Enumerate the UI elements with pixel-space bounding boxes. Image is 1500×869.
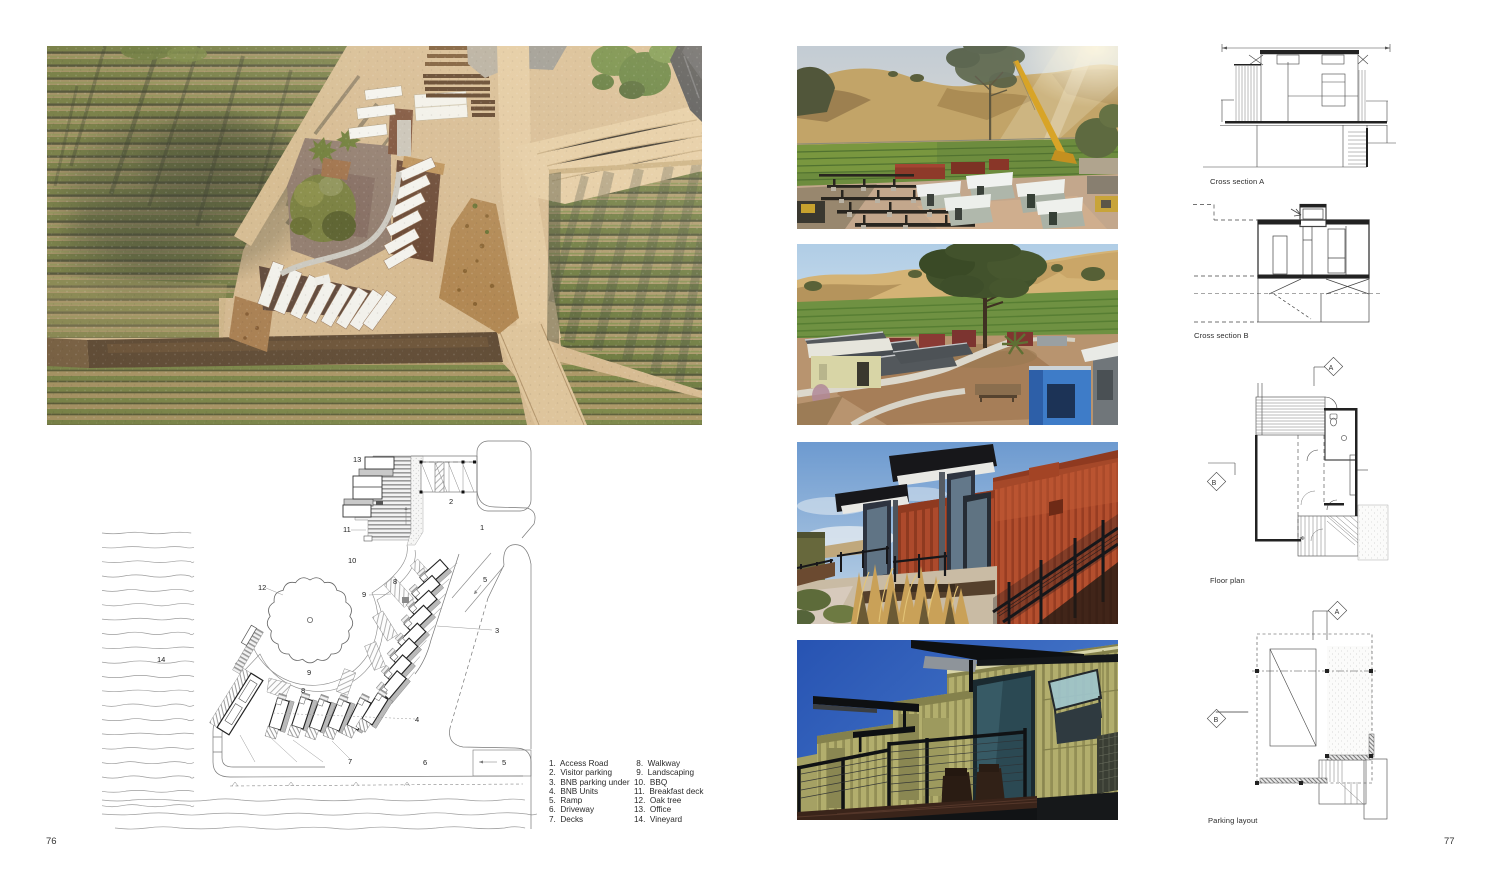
svg-text:8: 8 — [301, 686, 305, 695]
svg-text:3: 3 — [495, 626, 499, 635]
svg-text:A: A — [1329, 365, 1334, 372]
svg-text:5: 5 — [483, 575, 487, 584]
svg-text:2: 2 — [449, 497, 453, 506]
svg-text:9: 9 — [362, 590, 366, 599]
svg-text:12: 12 — [258, 583, 266, 592]
svg-text:7: 7 — [348, 757, 352, 766]
svg-text:9: 9 — [307, 668, 311, 677]
svg-text:1: 1 — [480, 523, 484, 532]
svg-text:6: 6 — [423, 758, 427, 767]
svg-text:4: 4 — [415, 715, 419, 724]
svg-text:A: A — [1335, 609, 1340, 616]
svg-text:5: 5 — [502, 758, 506, 767]
svg-text:11: 11 — [343, 525, 351, 534]
svg-text:B: B — [1214, 717, 1219, 724]
svg-text:13: 13 — [353, 455, 361, 464]
svg-text:8: 8 — [393, 577, 397, 586]
svg-text:B: B — [1212, 480, 1217, 487]
svg-text:14: 14 — [157, 655, 165, 664]
svg-text:10: 10 — [348, 556, 356, 565]
